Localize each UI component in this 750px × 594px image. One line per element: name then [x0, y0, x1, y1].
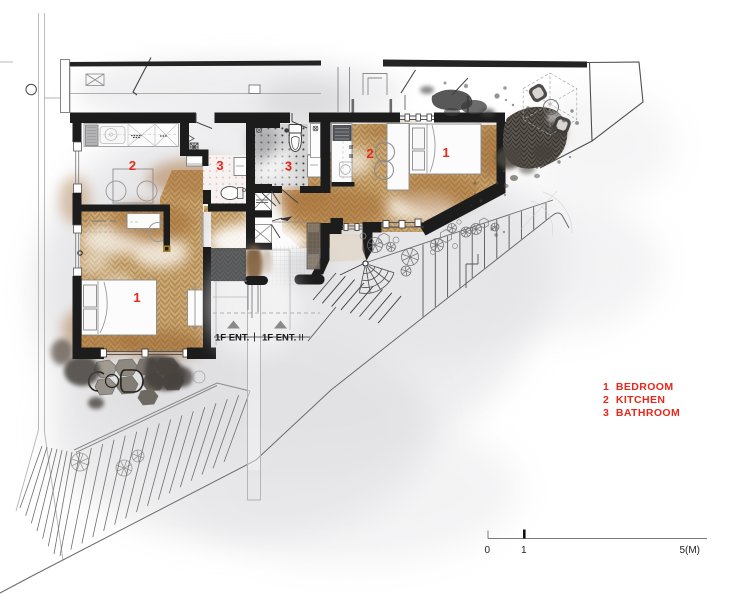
svg-text:1: 1: [442, 145, 449, 160]
svg-text:5(M): 5(M): [679, 545, 700, 556]
svg-text:1: 1: [521, 545, 527, 556]
svg-text:1: 1: [133, 290, 140, 305]
svg-text:3: 3: [216, 158, 223, 173]
svg-text:1F ENT.: 1F ENT.: [262, 333, 296, 344]
svg-text:1F ENT.: 1F ENT.: [215, 333, 249, 344]
svg-text:2: 2: [366, 146, 373, 161]
svg-text:II: II: [299, 333, 304, 344]
svg-text:2: 2: [129, 158, 136, 173]
svg-text:1 BEDROOM: 1 BEDROOM: [603, 381, 674, 393]
svg-text:2 KITCHEN: 2 KITCHEN: [603, 394, 665, 406]
svg-text:3 BATHROOM: 3 BATHROOM: [603, 407, 680, 419]
svg-text:0: 0: [485, 545, 491, 556]
svg-text:3: 3: [285, 159, 292, 174]
